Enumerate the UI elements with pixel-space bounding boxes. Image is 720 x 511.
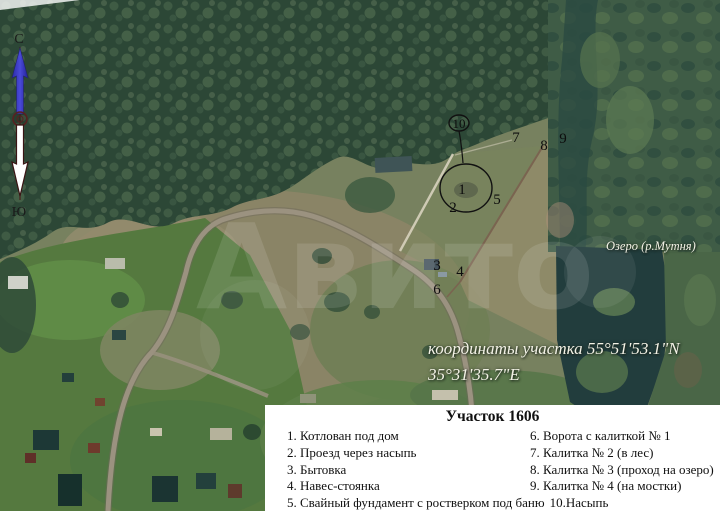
legend-item-5: 5. Свайный фундамент с ростверком под ба… — [287, 495, 545, 511]
legend-bottom-row: 5. Свайный фундамент с ростверком под ба… — [287, 495, 720, 511]
map-label-8: 8 — [540, 138, 548, 154]
lake-label: Озеро (р.Мутня) — [606, 239, 696, 254]
map-label-3: 3 — [433, 258, 441, 274]
legend-right-column: 6. Ворота с калиткой № 1 7. Калитка № 2 … — [530, 428, 720, 495]
legend-item-4: 4. Навес-стоянка — [287, 478, 530, 495]
legend-left-column: 1. Котлован под дом 2. Проезд через насы… — [287, 428, 530, 495]
legend-item-9: 9. Калитка № 4 (на мостки) — [530, 478, 720, 495]
legend-item-6: 6. Ворота с калиткой № 1 — [530, 428, 720, 445]
compass-hub — [13, 112, 27, 126]
listing-map-image: Авито 1 2 3 4 5 6 7 8 9 10 С Ю координат… — [0, 0, 720, 511]
legend-item-7: 7. Калитка № 2 (в лес) — [530, 445, 720, 462]
map-label-7: 7 — [512, 130, 520, 146]
legend-panel: Участок 1606 1. Котлован под дом 2. Прое… — [265, 405, 720, 511]
compass-north-label: С — [14, 32, 23, 47]
legend-item-2: 2. Проезд через насыпь — [287, 445, 530, 462]
map-label-2: 2 — [449, 200, 457, 216]
map-label-6: 6 — [433, 282, 441, 298]
legend-item-1: 1. Котлован под дом — [287, 428, 530, 445]
map-label-9: 9 — [559, 131, 567, 147]
map-label-4: 4 — [456, 264, 464, 280]
map-label-1: 1 — [458, 182, 466, 198]
legend-item-10: 10.Насыпь — [550, 495, 609, 511]
legend-grid: 1. Котлован под дом 2. Проезд через насы… — [265, 428, 720, 495]
map-label-10: 10 — [453, 116, 466, 131]
plot-coordinates: координаты участка 55°51'53.1"N 35°31'35… — [428, 336, 698, 388]
watermark-text: Авито — [196, 198, 594, 336]
map-label-5: 5 — [493, 192, 501, 208]
coordinates-line1: координаты участка 55°51'53.1"N — [428, 336, 698, 362]
coordinates-line2: 35°31'35.7"E — [428, 362, 698, 388]
legend-title: Участок 1606 — [265, 408, 720, 426]
legend-item-8: 8. Калитка № 3 (проход на озеро) — [530, 462, 720, 479]
legend-item-3: 3. Бытовка — [287, 462, 530, 479]
compass-south-label: Ю — [12, 205, 26, 220]
